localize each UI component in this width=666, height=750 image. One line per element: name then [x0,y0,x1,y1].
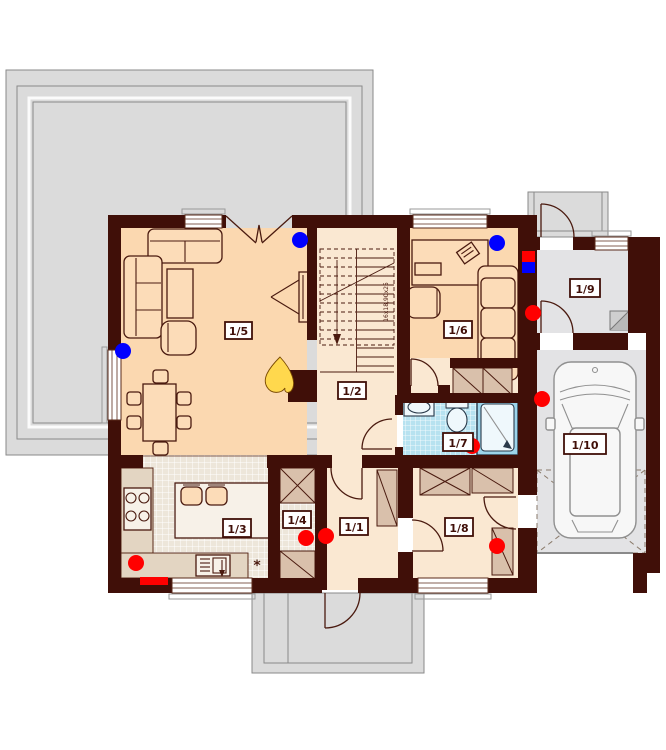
room-label-1-1: 1/1 [340,518,368,535]
fridge-symbol: * [253,558,261,574]
armchair [161,321,196,355]
blue-marker [292,232,308,248]
dining-chair [127,416,141,429]
svg-text:1/5: 1/5 [229,325,248,338]
car-mirror-right [635,418,644,430]
svg-text:1/10: 1/10 [572,439,599,452]
dining-chair [153,370,168,383]
stair-dimension-text: 16x18,90x25 [383,282,390,322]
office-window [410,209,490,228]
room-label-1-2: 1/2 [338,382,366,399]
entry-stoop [528,192,608,237]
red-marker [489,538,505,554]
room-label-1-10: 1/10 [564,434,606,454]
room-label-1-5: 1/5 [225,322,252,339]
dining-table [143,384,176,441]
toilet [446,399,468,432]
kitchen-sink [196,555,230,577]
red-square-marker [522,251,535,262]
svg-text:1/2: 1/2 [342,385,361,398]
dining-chair [127,392,141,405]
back-stoop [252,593,424,673]
shaft [610,311,629,330]
sofa-three-seat [124,256,162,338]
red-marker [318,528,334,544]
stool [206,487,227,505]
red-marker [525,305,541,321]
blue-square-marker [522,262,535,273]
red-marker [298,530,314,546]
utility-window [415,578,491,599]
desk-chair [407,287,440,318]
dining-chair [153,442,168,455]
dining-chair [177,392,191,405]
kitchen-window [169,578,255,599]
room-label-1-7: 1/7 [443,433,473,451]
red-marker [534,391,550,407]
floor-plan-page: 16x18,90x25 [0,0,666,750]
room-label-1-4: 1/4 [283,511,311,528]
blue-marker [489,235,505,251]
red-bar-marker [140,577,168,585]
room-label-1-9: 1/9 [570,279,600,297]
tv-wall [307,228,317,340]
blue-marker [115,343,131,359]
svg-text:1/3: 1/3 [227,523,246,536]
svg-text:1/1: 1/1 [344,521,363,534]
room-label-1-8: 1/8 [445,518,473,536]
red-marker [128,555,144,571]
svg-text:1/8: 1/8 [449,522,468,535]
dining-chair [177,416,191,429]
car-mirror-left [546,418,555,430]
desk-tray [415,263,441,275]
svg-text:1/4: 1/4 [287,514,307,527]
room-label-1-3: 1/3 [223,519,251,537]
floor-plan-svg: 16x18,90x25 [0,0,666,750]
coffee-table [167,269,193,318]
stool [181,487,202,505]
svg-text:1/7: 1/7 [448,437,467,450]
shower [477,400,518,455]
svg-text:1/6: 1/6 [448,324,468,337]
room-label-1-6: 1/6 [444,321,472,338]
stair-hall-floor [317,228,397,455]
svg-text:1/9: 1/9 [575,283,594,296]
